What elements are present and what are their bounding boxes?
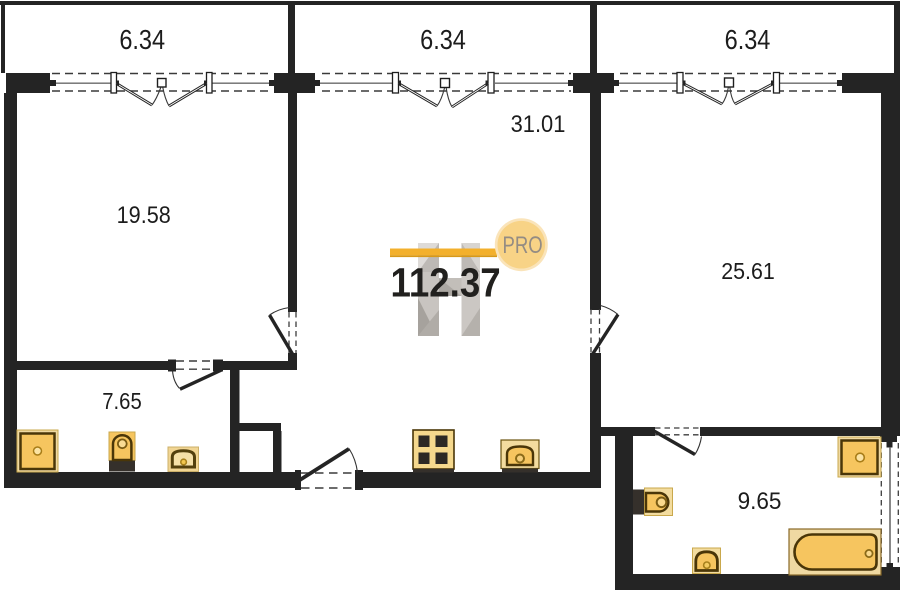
svg-text:19.58: 19.58 <box>117 201 171 228</box>
svg-text:112.37: 112.37 <box>391 260 501 305</box>
svg-text:PRO: PRO <box>503 231 543 259</box>
svg-text:9.65: 9.65 <box>738 487 782 514</box>
svg-text:6.34: 6.34 <box>119 25 165 55</box>
svg-text:6.34: 6.34 <box>420 25 466 55</box>
svg-text:7.65: 7.65 <box>102 388 141 414</box>
svg-text:25.61: 25.61 <box>721 258 775 284</box>
svg-text:6.34: 6.34 <box>725 25 771 55</box>
svg-text:31.01: 31.01 <box>511 110 566 137</box>
